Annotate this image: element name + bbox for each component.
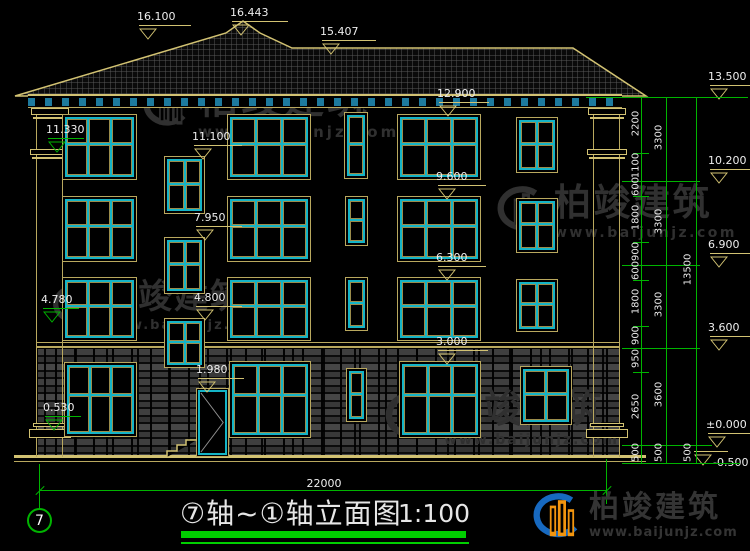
- window-glazing: [65, 199, 134, 259]
- window-pane: [521, 305, 536, 327]
- window-glazing: [167, 159, 202, 211]
- window-glazing: [519, 282, 555, 329]
- window-pane: [169, 185, 184, 209]
- drawing-scale: 1:100: [398, 499, 470, 528]
- dim-value: 2200: [631, 102, 642, 146]
- level-marker-line: [43, 308, 79, 309]
- window-glazing: [400, 280, 478, 338]
- level-marker: [439, 102, 457, 114]
- window-pane: [402, 201, 425, 225]
- window-pane: [402, 307, 425, 336]
- level-marker-line: [438, 350, 488, 351]
- level-marker: [322, 40, 340, 52]
- dim-value: 2650: [631, 385, 642, 429]
- window-pane: [538, 284, 553, 303]
- window-frame: [346, 368, 367, 422]
- level-marker-label: 0.530: [43, 401, 75, 414]
- brand-name: 柏竣建筑: [589, 493, 738, 523]
- level-marker-line: [710, 336, 750, 337]
- window-pane: [259, 396, 282, 433]
- window-pane: [232, 282, 255, 305]
- window-pane: [69, 367, 89, 394]
- span-dim-extension: [39, 464, 40, 509]
- window-pane: [402, 145, 425, 175]
- window-pane: [427, 282, 450, 305]
- window-pane: [521, 284, 536, 303]
- brand-logo-icon: [529, 493, 585, 547]
- window-glazing: [167, 321, 202, 365]
- level-marker-label: 10.200: [708, 154, 747, 167]
- ground-line: [14, 455, 646, 458]
- window-pane: [67, 307, 87, 336]
- level-marker-line: [694, 451, 728, 452]
- level-marker-label: 6.300: [436, 251, 468, 264]
- window-pane: [525, 395, 545, 420]
- elevation-drawing: ⑦轴~①轴立面图 1:100 7 22000 柏竣建筑 www.baijunjz…: [0, 0, 750, 551]
- window-glazing: [519, 201, 555, 250]
- level-line: [586, 97, 748, 98]
- rafter-brackets: [28, 98, 622, 106]
- window-pane: [232, 307, 255, 336]
- level-marker-line: [322, 40, 376, 41]
- window-pane: [89, 119, 109, 143]
- window-glazing: [348, 199, 365, 243]
- entry-door: [196, 388, 229, 457]
- window-pane: [538, 305, 553, 327]
- level-marker: [194, 145, 212, 157]
- window-glazing: [348, 280, 365, 328]
- window-pane: [351, 395, 362, 417]
- window-pane: [91, 396, 111, 432]
- level-marker-label: 7.950: [194, 211, 226, 224]
- window-pane: [538, 203, 553, 223]
- dim-value: 13500: [683, 248, 694, 292]
- axis-label: 7: [35, 513, 44, 529]
- window-glazing: [230, 117, 308, 177]
- dim-value: 500: [654, 431, 665, 475]
- stone-belt-line: [36, 342, 620, 343]
- brand-url: www.baijunjz.com: [589, 526, 738, 539]
- pilaster-capital: [588, 108, 626, 115]
- level-marker-line: [438, 266, 486, 267]
- window-pane: [547, 371, 567, 393]
- window-frame: [397, 277, 481, 341]
- dim-value: 500: [683, 431, 694, 475]
- window-glazing: [347, 115, 365, 176]
- span-dimension-label: 22000: [297, 477, 351, 490]
- window-pane: [89, 227, 109, 257]
- window-pane: [186, 343, 201, 363]
- level-marker-line: [708, 433, 750, 434]
- window-pane: [283, 282, 306, 305]
- window-pane: [427, 307, 450, 336]
- window-pane: [232, 227, 255, 257]
- window-pane: [169, 343, 184, 363]
- window-pane: [257, 227, 280, 257]
- window-pane: [257, 282, 280, 305]
- window-pane: [67, 201, 87, 225]
- level-marker-line: [45, 416, 81, 417]
- level-marker-line: [710, 253, 750, 254]
- level-marker: [710, 85, 728, 97]
- level-marker: [196, 306, 214, 318]
- level-marker-line: [232, 21, 288, 22]
- window-pane: [169, 265, 184, 289]
- window-pane: [404, 366, 427, 394]
- window-pane: [112, 396, 132, 432]
- level-marker-label: 16.443: [230, 6, 269, 19]
- window-pane: [429, 366, 452, 394]
- window-pane: [402, 119, 425, 143]
- window-pane: [186, 161, 201, 183]
- window-pane: [169, 323, 184, 341]
- level-marker: [438, 266, 456, 278]
- window-frame: [516, 117, 558, 173]
- window-pane: [402, 227, 425, 257]
- window-pane: [538, 122, 553, 143]
- stone-belt-line: [36, 346, 620, 348]
- window-pane: [350, 221, 363, 241]
- window-pane: [521, 145, 536, 168]
- window-pane: [112, 119, 132, 143]
- drawing-title: ⑦轴~①轴立面图: [180, 492, 402, 532]
- window-pane: [351, 373, 362, 393]
- level-marker: [710, 336, 728, 348]
- level-marker: [48, 138, 66, 150]
- window-pane: [402, 282, 425, 305]
- window-pane: [112, 201, 132, 225]
- window-pane: [453, 282, 476, 305]
- window-pane: [169, 242, 184, 263]
- window-pane: [521, 225, 536, 248]
- window-pane: [283, 366, 306, 394]
- level-marker-label: 12.900: [437, 87, 476, 100]
- level-marker-label: 4.800: [194, 291, 226, 304]
- window-pane: [453, 307, 476, 336]
- window-pane: [538, 145, 553, 168]
- window-pane: [427, 201, 450, 225]
- level-marker-line: [198, 378, 244, 379]
- window-pane: [283, 227, 306, 257]
- window-glazing: [523, 369, 569, 422]
- level-marker: [438, 185, 456, 197]
- window-frame: [227, 277, 311, 341]
- level-marker: [710, 253, 728, 265]
- dim-chain-line: [666, 97, 667, 463]
- window-frame: [399, 361, 481, 438]
- window-pane: [234, 396, 257, 433]
- window-pane: [91, 367, 111, 394]
- window-pane: [112, 227, 132, 257]
- window-pane: [429, 396, 452, 433]
- level-marker-label: 6.900: [708, 238, 740, 251]
- window-pane: [186, 323, 201, 341]
- window-pane: [259, 366, 282, 394]
- window-frame: [516, 279, 558, 332]
- title-underline-thin: [181, 542, 469, 544]
- dim-value: 3300: [654, 283, 665, 327]
- level-marker-line: [710, 169, 750, 170]
- level-marker: [139, 25, 157, 37]
- level-marker: [45, 416, 63, 428]
- dim-value: 950: [631, 337, 642, 381]
- window-frame: [164, 318, 205, 368]
- window-pane: [186, 265, 201, 289]
- window-glazing: [65, 280, 134, 338]
- window-glazing: [519, 120, 555, 170]
- window-pane: [186, 185, 201, 209]
- dim-value: 3600: [654, 373, 665, 417]
- window-pane: [89, 145, 109, 175]
- window-frame: [62, 196, 137, 262]
- window-frame: [62, 277, 137, 341]
- window-pane: [112, 307, 132, 336]
- pilaster-capital: [590, 423, 624, 427]
- watermark-brand: 柏竣建筑: [554, 184, 737, 221]
- window-frame: [520, 366, 572, 425]
- level-marker-label: 11.100: [192, 130, 231, 143]
- window-glazing: [400, 199, 478, 259]
- window-pane: [453, 201, 476, 225]
- level-marker-label: 16.100: [137, 10, 176, 23]
- window-pane: [257, 201, 280, 225]
- level-marker-line: [710, 85, 750, 86]
- level-marker: [708, 433, 726, 445]
- window-pane: [112, 145, 132, 175]
- window-frame: [344, 112, 368, 179]
- level-marker: [438, 350, 456, 362]
- window-frame: [229, 361, 311, 438]
- window-pane: [257, 119, 280, 143]
- window-pane: [232, 201, 255, 225]
- level-marker-line: [48, 138, 84, 139]
- window-pane: [283, 145, 306, 175]
- window-pane: [521, 203, 536, 223]
- window-frame: [516, 198, 558, 253]
- axis-bubble-7: 7: [27, 508, 52, 533]
- window-pane: [232, 145, 255, 175]
- window-pane: [232, 119, 255, 143]
- level-marker-label: 15.407: [320, 25, 359, 38]
- dim-value: 3300: [654, 200, 665, 244]
- brand-logo: 柏竣建筑 www.baijunjz.com: [529, 493, 738, 547]
- window-glazing: [67, 365, 134, 434]
- window-pane: [186, 242, 201, 263]
- window-pane: [67, 227, 87, 257]
- window-pane: [453, 396, 476, 433]
- pilaster-capital: [589, 157, 625, 159]
- window-frame: [345, 196, 368, 246]
- window-pane: [112, 282, 132, 305]
- window-pane: [112, 367, 132, 394]
- pilaster-capital: [587, 149, 627, 155]
- window-pane: [350, 304, 363, 326]
- level-marker: [198, 378, 216, 390]
- window-frame: [164, 237, 205, 294]
- level-marker-line: [196, 306, 242, 307]
- window-pane: [283, 307, 306, 336]
- window-glazing: [400, 117, 478, 177]
- pilaster-capital: [590, 117, 624, 119]
- window-pane: [257, 145, 280, 175]
- window-pane: [283, 396, 306, 433]
- dim-chain-line: [696, 97, 697, 463]
- window-frame: [64, 362, 137, 437]
- window-pane: [427, 119, 450, 143]
- span-dim-line: [40, 490, 607, 491]
- level-marker-label: 11.330: [46, 123, 85, 136]
- window-glazing: [230, 199, 308, 259]
- window-pane: [350, 282, 363, 302]
- level-marker: [43, 308, 61, 320]
- window-pane: [453, 366, 476, 394]
- window-frame: [345, 277, 368, 331]
- dim-value: 500: [631, 431, 642, 475]
- entry-steps: [166, 437, 198, 458]
- window-glazing: [232, 364, 308, 435]
- level-marker-line: [194, 145, 242, 146]
- window-pane: [349, 145, 363, 174]
- window-pane: [404, 396, 427, 433]
- level-marker-line: [438, 185, 486, 186]
- level-marker-label: 4.780: [41, 293, 73, 306]
- window-frame: [227, 196, 311, 262]
- window-pane: [257, 307, 280, 336]
- window-pane: [89, 201, 109, 225]
- level-marker-label: 1.980: [196, 363, 228, 376]
- level-marker-label: 9.600: [436, 170, 468, 183]
- window-pane: [283, 201, 306, 225]
- window-pane: [89, 282, 109, 305]
- window-frame: [227, 114, 311, 180]
- window-pane: [67, 145, 87, 175]
- pilaster: [593, 108, 620, 457]
- window-pane: [525, 371, 545, 393]
- door-leaf: [198, 390, 227, 455]
- level-marker-line: [439, 102, 489, 103]
- window-glazing: [402, 364, 478, 435]
- level-marker-label: 3.600: [708, 321, 740, 334]
- window-pane: [350, 201, 363, 219]
- window-pane: [349, 117, 363, 143]
- pilaster-capital: [586, 429, 628, 438]
- window-pane: [283, 119, 306, 143]
- level-marker-line: [196, 226, 242, 227]
- title-underline-thick: [181, 531, 466, 538]
- window-pane: [89, 307, 109, 336]
- level-marker-label: 3.000: [436, 335, 468, 348]
- window-glazing: [230, 280, 308, 338]
- ground-line: [14, 461, 646, 462]
- window-pane: [538, 225, 553, 248]
- level-marker-label: 13.500: [708, 70, 747, 83]
- window-glazing: [349, 371, 364, 419]
- level-marker-label: ±0.000: [706, 418, 747, 431]
- level-marker: [196, 226, 214, 238]
- window-pane: [453, 119, 476, 143]
- level-marker: [232, 21, 250, 33]
- level-marker-line: [139, 25, 191, 26]
- level-marker: [710, 169, 728, 181]
- window-pane: [521, 122, 536, 143]
- window-pane: [234, 366, 257, 394]
- window-pane: [547, 395, 567, 420]
- dim-value: 3300: [654, 116, 665, 160]
- window-pane: [169, 161, 184, 183]
- window-glazing: [167, 240, 202, 291]
- window-frame: [164, 156, 205, 214]
- eave-fascia: [28, 94, 622, 108]
